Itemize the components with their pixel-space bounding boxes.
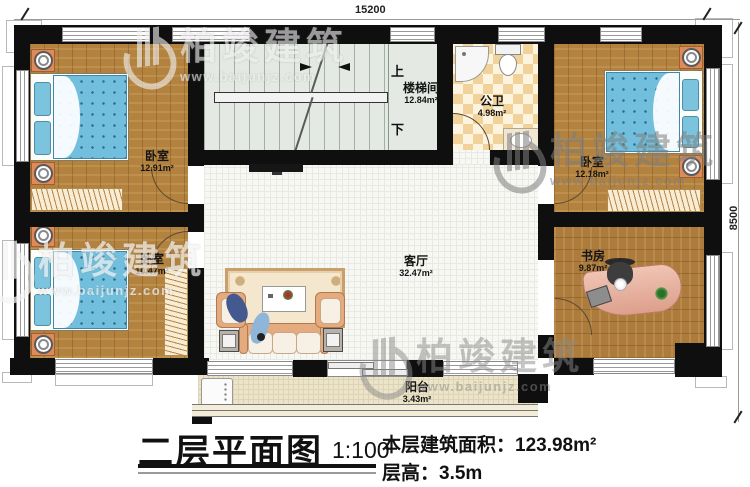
pillow bbox=[34, 294, 51, 326]
floor-area-row: 本层建筑面积：123.98m² bbox=[382, 430, 596, 457]
lamp-icon bbox=[682, 157, 701, 176]
desk-lamp bbox=[614, 278, 627, 291]
wall-interior bbox=[204, 150, 453, 165]
room-floor-balcony bbox=[198, 375, 538, 405]
wall-interior bbox=[437, 44, 453, 150]
floor-area-label: 本层建筑面积： bbox=[382, 435, 515, 456]
room-label-stairwell: 楼梯间 12.84m² bbox=[403, 82, 439, 106]
sheet-fold bbox=[54, 252, 80, 328]
side-table-lamp bbox=[222, 334, 236, 348]
lamp-icon bbox=[682, 48, 701, 67]
bed-top-right bbox=[604, 70, 703, 154]
title-underline bbox=[138, 464, 376, 468]
duvet bbox=[606, 72, 680, 152]
wall-interior bbox=[188, 204, 204, 232]
duvet bbox=[53, 251, 127, 329]
window bbox=[443, 361, 518, 376]
dimension-label-width: 15200 bbox=[355, 4, 386, 16]
sliding-door-panel bbox=[362, 369, 408, 376]
pillow bbox=[34, 257, 51, 289]
room-floor-living-doorway bbox=[453, 150, 490, 165]
tv-stand bbox=[272, 172, 282, 175]
window bbox=[593, 359, 675, 374]
bed-bottom-left bbox=[30, 249, 129, 331]
window bbox=[706, 68, 720, 180]
sliding-door-panel bbox=[328, 362, 374, 369]
wall-interior bbox=[554, 212, 704, 227]
duvet bbox=[53, 75, 127, 159]
armchair-cushion bbox=[320, 298, 341, 324]
window bbox=[706, 255, 720, 347]
pillow bbox=[34, 121, 51, 155]
wall-interior bbox=[538, 204, 554, 260]
wall-interior bbox=[538, 44, 554, 150]
sheet-fold bbox=[54, 76, 80, 158]
stair-down-label: 下 bbox=[391, 119, 404, 138]
plan-scale: 1:100 bbox=[332, 437, 390, 464]
room-label-bedroom-top-left: 卧室 12.91m² bbox=[140, 150, 174, 174]
south-window-frame bbox=[695, 376, 727, 388]
side-table-lamp bbox=[326, 333, 340, 347]
wall-south bbox=[293, 360, 327, 377]
stair-direction-arrow bbox=[338, 63, 350, 71]
floor-height-value: 3.5m bbox=[439, 463, 482, 484]
wardrobe bbox=[164, 268, 188, 356]
sheet-fold bbox=[653, 73, 679, 151]
window bbox=[62, 27, 150, 42]
window bbox=[207, 361, 293, 376]
nightstand bbox=[31, 49, 55, 72]
room-label-bedroom-bottom-left: 卧室 10.47m² bbox=[135, 253, 169, 277]
side-table bbox=[323, 328, 343, 352]
room-label-bedroom-top-right: 卧室 12.18m² bbox=[575, 156, 609, 180]
floor-height-row: 层高：3.5m bbox=[382, 458, 482, 485]
plant-icon bbox=[655, 287, 668, 300]
south-window-frame bbox=[55, 374, 153, 386]
stair-handrail bbox=[214, 92, 388, 103]
remote bbox=[268, 294, 273, 298]
floor-height-label: 层高： bbox=[382, 463, 439, 484]
lamp-icon bbox=[34, 164, 53, 183]
lamp-icon bbox=[34, 335, 53, 354]
room-label-living: 客厅 32.47m² bbox=[399, 255, 433, 279]
nightstand bbox=[31, 333, 55, 356]
person-head bbox=[257, 333, 265, 341]
window bbox=[600, 27, 642, 42]
balcony-column bbox=[518, 374, 548, 403]
window bbox=[172, 27, 250, 42]
pillow bbox=[682, 116, 699, 148]
stair-direction-arrow bbox=[300, 63, 312, 71]
nightstand bbox=[31, 162, 55, 185]
dimension-line-top bbox=[14, 19, 740, 20]
washing-machine-controls bbox=[224, 382, 227, 402]
room-label-study: 书房 9.87m² bbox=[579, 250, 608, 274]
wall-interior bbox=[30, 212, 188, 227]
wall-interior bbox=[538, 150, 554, 166]
floor-plan-page: 15200 8500 上 下 bbox=[0, 0, 750, 487]
lamp-icon bbox=[34, 51, 53, 70]
sofa-cushion bbox=[296, 332, 321, 354]
dimension-label-height: 8500 bbox=[728, 206, 740, 230]
stair-up-label: 上 bbox=[391, 61, 404, 80]
pillow bbox=[34, 82, 51, 116]
floor-area-value: 123.98m² bbox=[515, 435, 596, 456]
lamp-icon bbox=[34, 226, 53, 245]
wardrobe bbox=[607, 189, 701, 212]
window bbox=[390, 27, 435, 42]
window bbox=[16, 243, 29, 337]
tv-screen bbox=[249, 164, 303, 172]
bed-top-left bbox=[30, 73, 129, 161]
sink-basin bbox=[510, 133, 532, 148]
wall-south bbox=[153, 358, 209, 375]
wardrobe bbox=[31, 188, 123, 211]
wall-interior bbox=[538, 335, 554, 358]
window bbox=[16, 70, 29, 162]
wall-interior bbox=[188, 44, 204, 166]
wall-south bbox=[554, 358, 594, 375]
pillow bbox=[682, 79, 699, 111]
room-label-balcony: 阳台 3.43m² bbox=[403, 381, 432, 405]
room-label-bathroom: 公卫 4.98m² bbox=[478, 95, 507, 119]
nightstand bbox=[679, 46, 703, 69]
sofa-cushion bbox=[272, 332, 297, 354]
nightstand bbox=[679, 155, 703, 178]
wall-interior bbox=[188, 268, 204, 358]
table-flowers bbox=[283, 290, 293, 300]
side-table bbox=[219, 330, 239, 352]
shower-drain bbox=[462, 52, 466, 56]
balcony-railing bbox=[192, 404, 538, 417]
window bbox=[55, 359, 153, 374]
nightstand bbox=[31, 224, 55, 247]
window bbox=[498, 27, 545, 42]
wall-south bbox=[10, 358, 55, 375]
wall-corner-se bbox=[675, 343, 722, 377]
title-underline-secondary bbox=[138, 472, 376, 474]
wall-south bbox=[407, 360, 443, 377]
